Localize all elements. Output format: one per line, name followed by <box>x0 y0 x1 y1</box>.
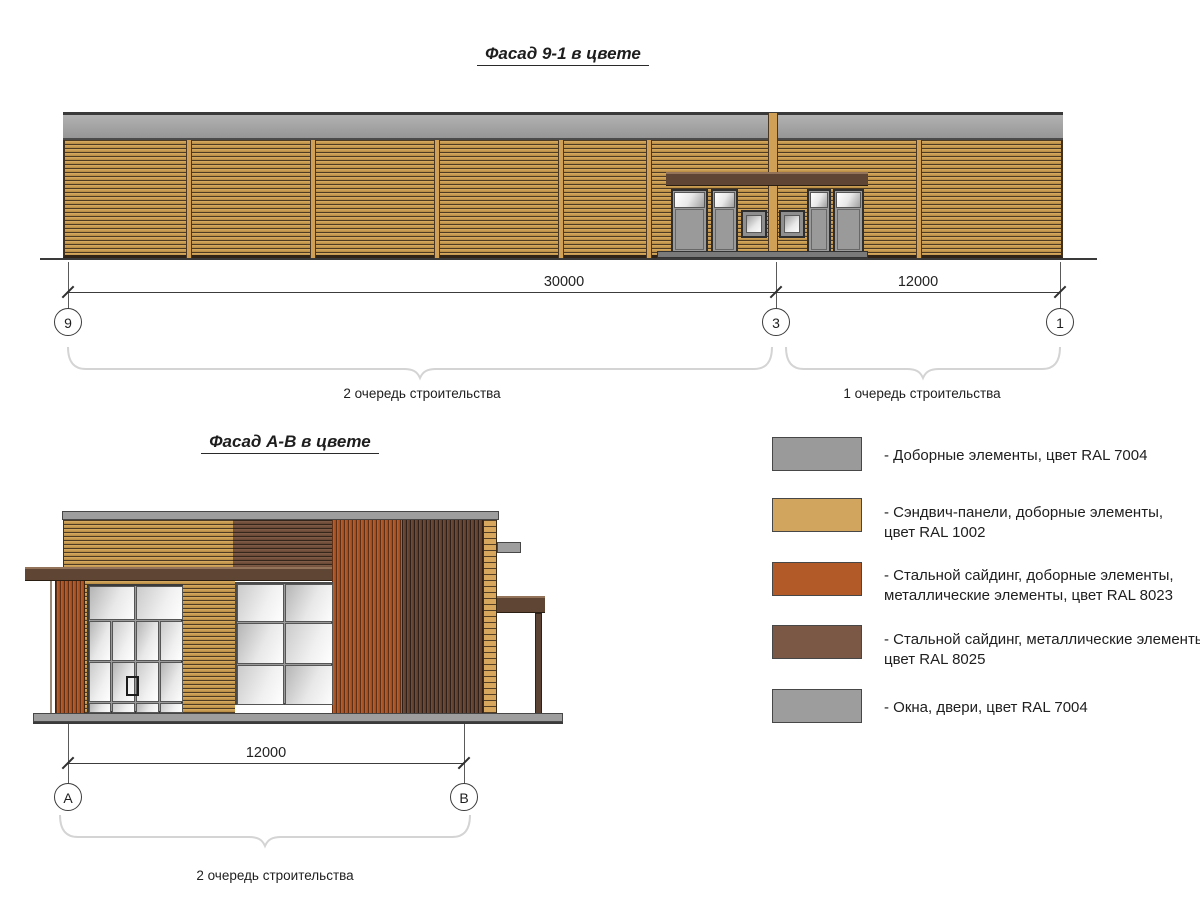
facade-ab-brown-band <box>233 520 332 567</box>
legend-swatch-windows <box>772 689 862 723</box>
facade-ab-canopy <box>25 567 332 581</box>
extension-line <box>1060 262 1061 309</box>
door-leaf <box>715 209 734 250</box>
window-pane <box>285 623 333 664</box>
door-handle <box>126 676 139 696</box>
entrance-door <box>671 189 708 254</box>
phase-label-1: 1 очередь строительства <box>772 386 1072 401</box>
window-pane <box>237 665 284 705</box>
dimension-line <box>68 292 1060 293</box>
facade-a-b-title: Фасад А-В в цвете <box>140 432 440 452</box>
phase-brace-bottom <box>60 815 470 846</box>
entrance-canopy <box>666 172 868 186</box>
phase-brace-right <box>786 347 1060 378</box>
door-transom-glass <box>836 192 861 208</box>
legend-label: - Доборные элементы, цвет RAL 7004 <box>884 446 1147 466</box>
axis-marker-1: 1 <box>1046 308 1074 336</box>
window-pane <box>160 662 183 702</box>
axis-marker-b: В <box>450 783 478 811</box>
siding-joint <box>434 140 440 258</box>
small-window <box>779 210 805 238</box>
window-pane <box>112 621 135 661</box>
canopy-post-right <box>535 613 542 714</box>
entrance-sidelight <box>711 189 738 254</box>
phase-label-2-bottom: 2 очередь строительства <box>125 868 425 883</box>
large-window <box>235 582 333 705</box>
window-pane <box>136 662 159 702</box>
drawing-sheet: Фасад 9-1 в цвете 30000 12 <box>0 0 1200 900</box>
extension-line <box>68 262 69 309</box>
dimension-value-12000: 12000 <box>206 745 326 761</box>
facade-ab-plinth <box>33 713 563 722</box>
facade-ab-tan-strip <box>483 520 497 713</box>
wall-bracket <box>497 542 521 553</box>
siding-joint <box>558 140 564 258</box>
door-transom-glass <box>714 192 735 208</box>
window-pane <box>89 586 135 620</box>
siding-joint <box>646 140 652 258</box>
axis-marker-3: 3 <box>762 308 790 336</box>
phase-brace-left <box>68 347 772 378</box>
legend-swatch-ral1002 <box>772 498 862 532</box>
window-pane <box>89 703 111 713</box>
window-pane <box>160 703 183 713</box>
window-pane <box>89 662 111 702</box>
entrance-sidelight <box>807 189 831 254</box>
legend-label: - Стальной сайдинг, доборные элементы, м… <box>884 566 1174 606</box>
legend-label: - Сэндвич-панели, доборные элементы, цве… <box>884 503 1163 543</box>
door-leaf <box>811 209 827 250</box>
side-canopy <box>497 596 545 613</box>
canopy-post-left <box>50 581 52 713</box>
window-pane <box>89 621 111 661</box>
legend-swatch-ral8025 <box>772 625 862 659</box>
extension-line <box>776 262 777 309</box>
dimension-value-12000: 12000 <box>858 274 978 290</box>
facade-ab-orange-panel <box>332 520 402 713</box>
siding-joint <box>186 140 192 258</box>
entrance-door <box>833 189 864 254</box>
facade-9-1-parapet-band <box>63 112 1063 140</box>
window-pane <box>237 623 284 664</box>
window-pane <box>237 584 284 622</box>
door-transom-glass <box>810 192 828 208</box>
window-glass <box>784 215 800 233</box>
facade-ab-dark-panel <box>402 520 483 713</box>
legend-label: - Окна, двери, цвет RAL 7004 <box>884 698 1088 718</box>
window-pane <box>136 703 159 713</box>
window-pane <box>136 621 159 661</box>
door-transom-glass <box>674 192 705 208</box>
siding-joint <box>310 140 316 258</box>
entrance-walkway <box>657 251 868 258</box>
ground-line <box>40 258 1097 260</box>
door-leaf <box>837 209 860 250</box>
ground-line <box>33 722 563 724</box>
facade-ab-coping <box>62 511 499 520</box>
legend-label: - Стальной сайдинг, металлические элемен… <box>884 630 1200 670</box>
axis-marker-a: А <box>54 783 82 811</box>
facade-ab-tan-band <box>63 520 233 567</box>
legend-swatch-ral8023 <box>772 562 862 596</box>
legend-swatch-ral7004 <box>772 437 862 471</box>
axis-marker-9: 9 <box>54 308 82 336</box>
window-glass <box>746 215 762 233</box>
extension-line <box>68 724 69 785</box>
extension-line <box>464 724 465 785</box>
door-leaf <box>675 209 704 250</box>
facade-ab-orange-column <box>55 581 85 713</box>
window-pane <box>160 621 183 661</box>
window-pane <box>285 665 333 705</box>
facade-9-1-title: Фасад 9-1 в цвете <box>413 44 713 64</box>
window-pane <box>112 703 135 713</box>
dimension-value-30000: 30000 <box>504 274 624 290</box>
window-pane <box>136 586 183 620</box>
window-pane <box>285 584 333 622</box>
storefront-glazing <box>87 584 183 713</box>
small-window <box>741 210 767 238</box>
dimension-line <box>68 763 464 764</box>
phase-label-2: 2 очередь строительства <box>272 386 572 401</box>
siding-joint <box>916 140 922 258</box>
